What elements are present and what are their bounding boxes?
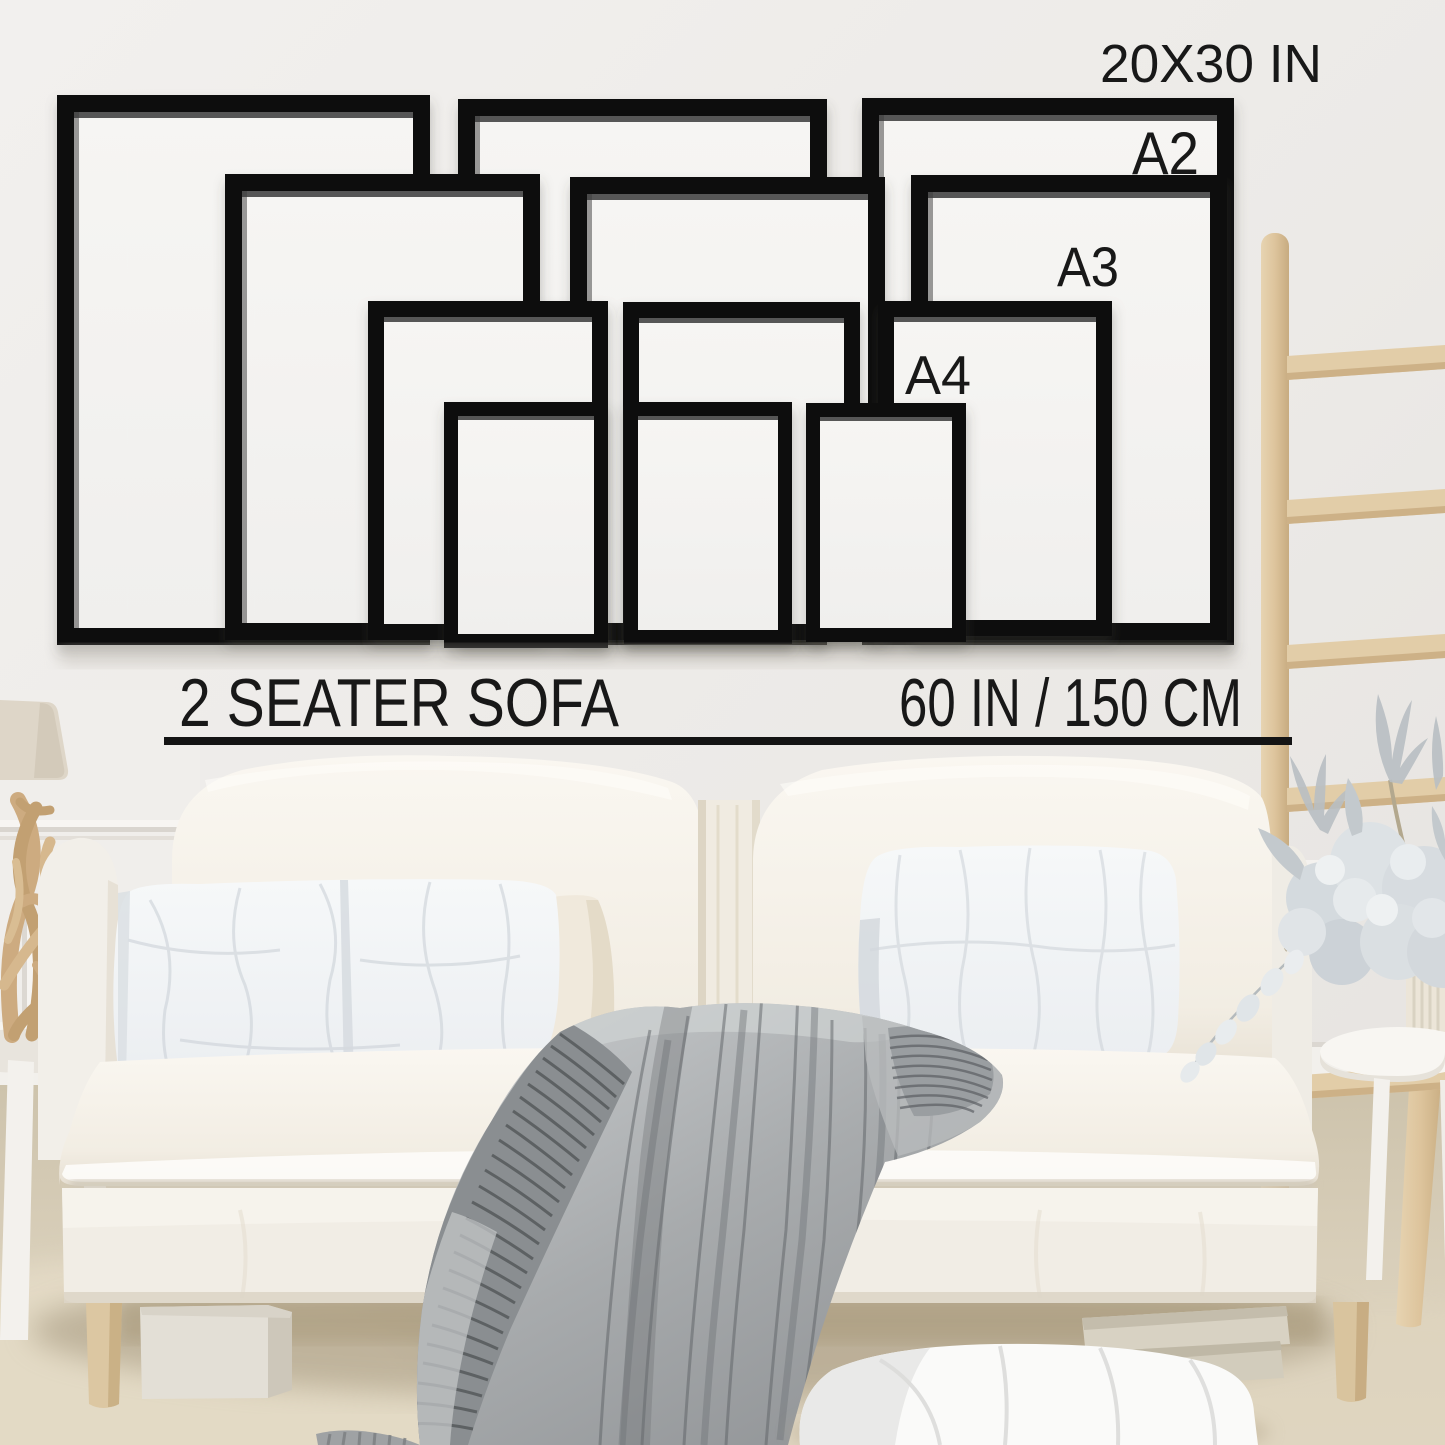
svg-text:2 SEATER SOFA: 2 SEATER SOFA xyxy=(179,665,620,741)
svg-text:20X30 IN: 20X30 IN xyxy=(1100,34,1322,94)
svg-text:A4: A4 xyxy=(905,344,971,406)
svg-text:A2: A2 xyxy=(1132,120,1199,187)
svg-text:60 IN / 150 CM: 60 IN / 150 CM xyxy=(899,665,1242,741)
svg-text:A3: A3 xyxy=(1057,235,1119,298)
